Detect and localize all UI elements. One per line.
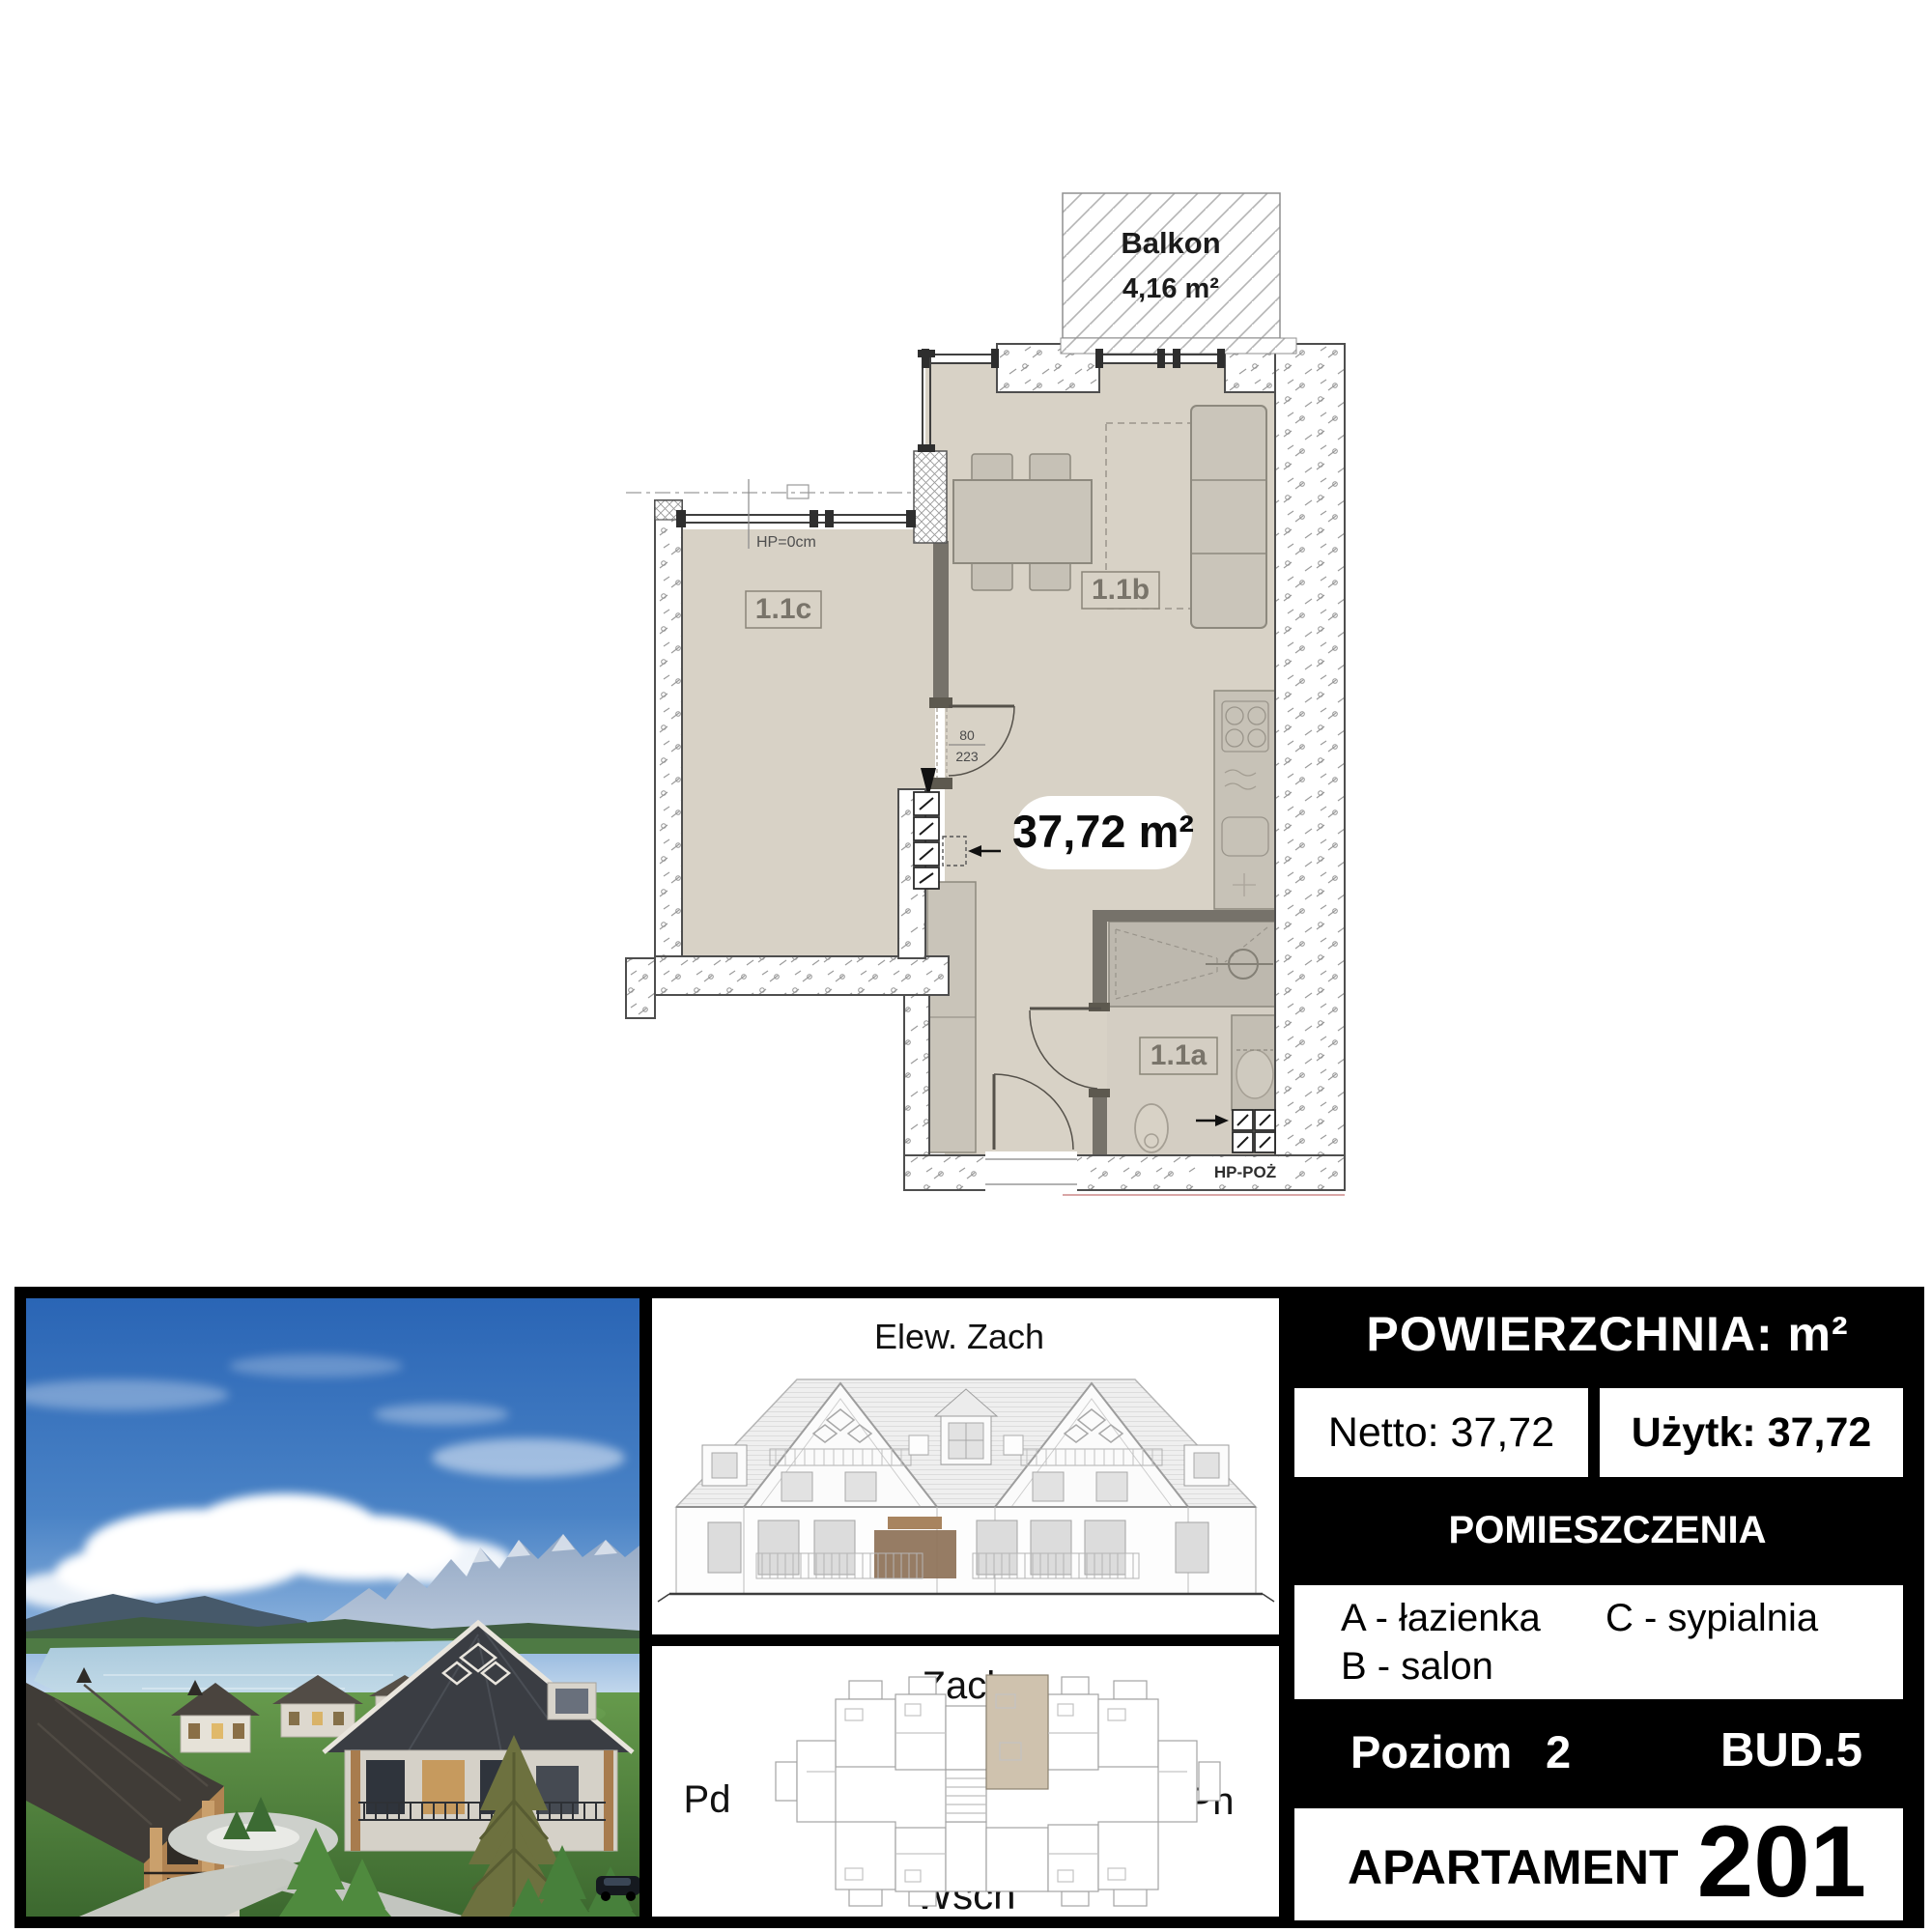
legend-bathroom: A - łazienka xyxy=(1341,1597,1541,1640)
resort-photo xyxy=(26,1298,639,1917)
room-label-1-1b: 1.1b xyxy=(1082,572,1159,609)
ground-line xyxy=(658,1594,1274,1602)
balcony-label: Balkon xyxy=(1121,226,1220,260)
svg-text:HP-POŻ: HP-POŻ xyxy=(1214,1163,1276,1181)
axis-mark xyxy=(787,485,809,498)
room-label-1-1a: 1.1a xyxy=(1140,1037,1217,1074)
highlighted-unit xyxy=(986,1675,1048,1789)
total-area-badge: 37,72 m² xyxy=(1012,796,1194,869)
entrance-gap xyxy=(985,1151,1077,1194)
netto-box: Netto: 37,72 xyxy=(1294,1388,1588,1477)
balcony-area: Balkon 4,16 m² xyxy=(1061,193,1296,354)
shower xyxy=(1109,922,1275,1007)
insulation-block xyxy=(914,451,947,543)
netto-label: Netto: xyxy=(1328,1409,1439,1457)
facade xyxy=(676,1507,1256,1594)
elevation-panel: Elew. Zach xyxy=(652,1298,1279,1634)
svg-text:80: 80 xyxy=(959,727,975,743)
svg-text:1.1c: 1.1c xyxy=(755,593,811,625)
svg-text:1.1a: 1.1a xyxy=(1151,1039,1207,1071)
apartment-label: APARTAMENT xyxy=(1348,1839,1679,1895)
apartment-number: 201 xyxy=(1697,1804,1866,1920)
legend-livingroom: B - salon xyxy=(1341,1645,1493,1689)
balcony-area-value: 4,16 m² xyxy=(1122,273,1219,304)
floor-plan: Balkon 4,16 m² HP=0cm 80 223 1.1c 1.1b 1… xyxy=(0,0,1932,1287)
roof-window xyxy=(909,1435,928,1455)
rooms-legend: A - łazienka C - sypialnia B - salon xyxy=(1294,1585,1903,1699)
siteplan-panel: Zach Pd Pn Wsch xyxy=(652,1646,1279,1917)
apartment-sheet: { "plan": { "balcony": { "label": "Balko… xyxy=(0,0,1932,1932)
building-label: BUD.5 xyxy=(1291,1723,1862,1777)
uzytk-box: Użytk: 37,72 xyxy=(1600,1388,1903,1477)
svg-text:1.1b: 1.1b xyxy=(1092,574,1150,606)
uzytk-value: 37,72 xyxy=(1768,1409,1872,1457)
area-header: POWIERZCHNIA: m² xyxy=(1291,1306,1924,1362)
uzytk-label: Użytk: xyxy=(1632,1409,1756,1457)
svg-text:37,72 m²: 37,72 m² xyxy=(1012,806,1194,857)
highlight-balcony-top xyxy=(888,1517,942,1529)
elevation-drawing: Elew. Zach xyxy=(652,1298,1279,1634)
rooms-header: POMIESZCZENIA xyxy=(1291,1509,1924,1552)
sofa xyxy=(1191,406,1266,628)
legend-bedroom: C - sypialnia xyxy=(1605,1597,1818,1640)
sill-note: HP=0cm xyxy=(756,534,816,551)
room-label-1-1c: 1.1c xyxy=(746,591,821,628)
building-plan xyxy=(776,1675,1220,1906)
kitchen-counter xyxy=(1214,691,1275,909)
toilet xyxy=(1135,1104,1168,1152)
siteplan-drawing: Zach Pd Pn Wsch xyxy=(652,1646,1279,1917)
roof-window xyxy=(1004,1435,1023,1455)
netto-value: 37,72 xyxy=(1451,1409,1555,1457)
dir-south: Pd xyxy=(684,1778,731,1821)
svg-text:223: 223 xyxy=(955,749,979,764)
hydrant-label: HP-POŻ xyxy=(1196,1157,1294,1183)
elevation-title: Elew. Zach xyxy=(874,1317,1044,1356)
highlight-balcony xyxy=(874,1530,956,1578)
apartment-box: APARTAMENT 201 xyxy=(1294,1808,1903,1920)
hall-wardrobe xyxy=(927,882,976,1152)
washbasin-unit xyxy=(1232,1015,1276,1110)
photo-panel xyxy=(26,1298,639,1917)
